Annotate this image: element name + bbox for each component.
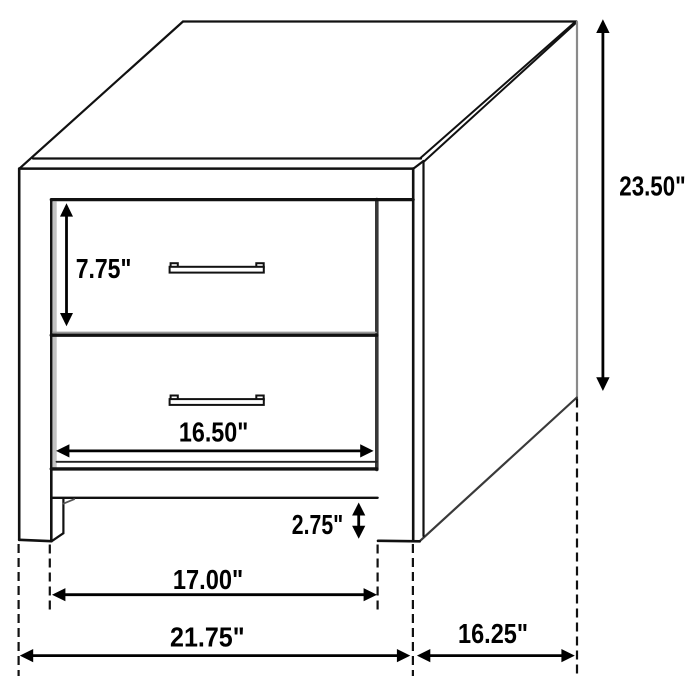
svg-text:7.75": 7.75" bbox=[76, 253, 132, 284]
svg-text:17.00": 17.00" bbox=[173, 564, 243, 595]
svg-text:2.75": 2.75" bbox=[292, 509, 343, 540]
svg-text:16.50": 16.50" bbox=[179, 417, 248, 448]
svg-text:21.75": 21.75" bbox=[170, 622, 245, 653]
svg-text:23.50": 23.50" bbox=[619, 171, 685, 202]
svg-text:16.25": 16.25" bbox=[458, 618, 528, 649]
